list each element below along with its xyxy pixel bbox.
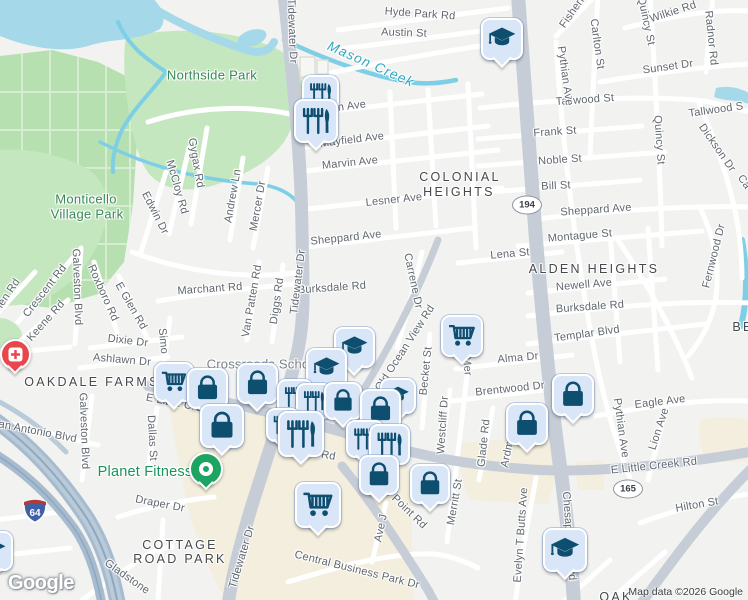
school-icon [0,536,8,566]
marker-bag[interactable] [200,404,244,448]
school-icon [548,533,582,567]
marker-bag[interactable] [410,464,450,504]
hospital-icon [5,344,26,365]
marker-bag[interactable] [324,382,362,420]
map-attribution: Map data ©2026 Google [628,586,743,598]
marker-cart[interactable] [295,482,341,528]
bag-icon [205,409,239,443]
cart-icon [300,487,336,523]
marker-restaurant[interactable] [278,411,324,457]
bag-icon [364,460,394,490]
google-logo[interactable]: Google [8,572,74,595]
cart-icon [446,320,478,352]
marker-bag[interactable] [187,368,228,409]
marker-restaurant[interactable] [294,99,338,143]
school-icon [486,23,518,55]
marker-bag[interactable] [237,363,278,404]
marker-hospital[interactable] [0,339,31,370]
bag-icon [415,469,445,499]
cart-icon [159,367,189,397]
bag-icon [192,373,223,404]
bag-icon [511,408,543,440]
marker-bag[interactable] [506,403,548,445]
marker-cart[interactable] [441,315,483,357]
school-icon [311,353,342,384]
marker-school[interactable] [0,531,13,571]
marker-bag[interactable] [359,455,399,495]
restaurant-icon [283,416,319,452]
marker-school[interactable] [481,18,523,60]
bag-icon [329,387,357,415]
bag-icon [242,368,273,399]
restaurant-icon [299,104,333,138]
marker-gym[interactable] [189,452,223,486]
marker-school[interactable] [543,528,587,572]
marker-bag[interactable] [552,374,594,416]
markers-layer [0,0,748,600]
bag-icon [557,379,589,411]
gym-icon [194,457,218,481]
map-canvas[interactable]: Hyde Park RdAustin StTidewater Drn AveMa… [0,0,748,600]
